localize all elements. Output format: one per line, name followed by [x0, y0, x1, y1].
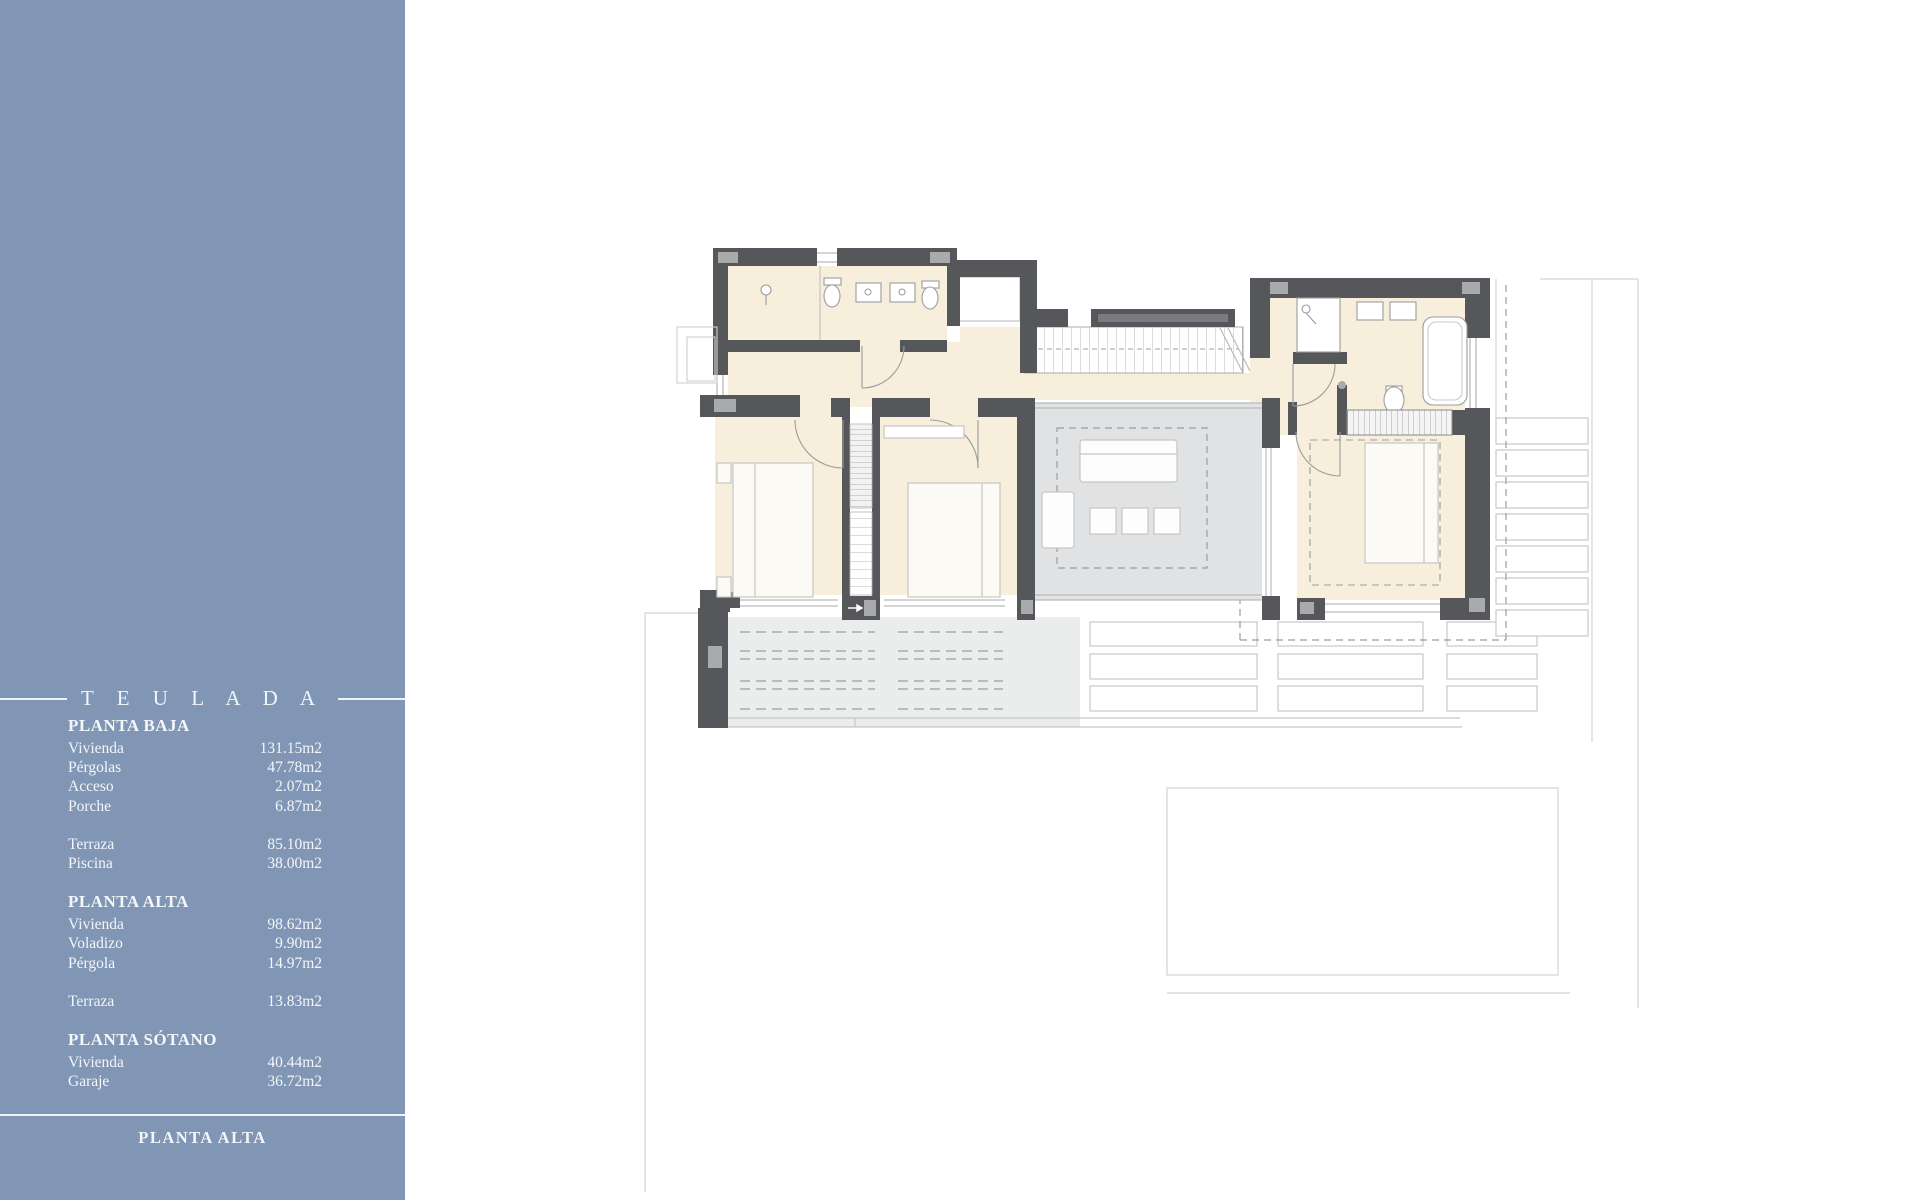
area-value: 14.97m2	[267, 954, 322, 973]
area-value: 38.00m2	[267, 854, 322, 873]
area-value: 36.72m2	[267, 1072, 322, 1091]
area-row: Vivienda131.15m2	[68, 739, 322, 758]
area-label: Acceso	[68, 777, 114, 796]
closet-room	[958, 277, 1020, 321]
area-group: Terraza85.10m2Piscina38.00m2	[68, 835, 322, 873]
area-value: 98.62m2	[267, 915, 322, 934]
area-row: Vivienda98.62m2	[68, 915, 322, 934]
pool-outline	[1167, 788, 1570, 993]
area-group: Terraza13.83m2	[68, 992, 322, 1011]
stairs-main	[1025, 327, 1250, 373]
area-label: Terraza	[68, 992, 114, 1011]
title-rule-left	[0, 698, 67, 700]
title-rule-right	[338, 698, 405, 700]
area-label: Pérgola	[68, 954, 115, 973]
area-label: Voladizo	[68, 934, 123, 953]
area-row: Porche6.87m2	[68, 797, 322, 816]
area-row: Terraza13.83m2	[68, 992, 322, 1011]
footer-divider	[0, 1114, 405, 1116]
area-value: 85.10m2	[267, 835, 322, 854]
floor-label: PLANTA ALTA	[0, 1128, 405, 1148]
area-label: Pérgolas	[68, 758, 121, 777]
sink-2	[1390, 302, 1416, 320]
area-section: PLANTA BAJAVivienda131.15m2Pérgolas47.78…	[68, 716, 322, 873]
info-sidebar: T E U L A D A PLANTA BAJAVivienda131.15m…	[0, 0, 405, 1200]
area-row: Pérgola14.97m2	[68, 954, 322, 973]
area-row: Pérgolas47.78m2	[68, 758, 322, 777]
area-group: Vivienda40.44m2Garaje36.72m2	[68, 1053, 322, 1091]
area-value: 2.07m2	[275, 777, 322, 796]
project-title: T E U L A D A	[67, 686, 338, 711]
area-row: Vivienda40.44m2	[68, 1053, 322, 1072]
area-value: 6.87m2	[275, 797, 322, 816]
area-value: 9.90m2	[275, 934, 322, 953]
sidebar-sections: PLANTA BAJAVivienda131.15m2Pérgolas47.78…	[68, 716, 322, 1110]
area-label: Garaje	[68, 1072, 109, 1091]
toilet	[1384, 387, 1404, 413]
section-heading: PLANTA ALTA	[68, 892, 322, 912]
area-row: Garaje36.72m2	[68, 1072, 322, 1091]
area-row: Acceso2.07m2	[68, 777, 322, 796]
section-heading: PLANTA BAJA	[68, 716, 322, 736]
area-group: Vivienda98.62m2Voladizo9.90m2Pérgola14.9…	[68, 915, 322, 973]
area-section: PLANTA SÓTANOVivienda40.44m2Garaje36.72m…	[68, 1030, 322, 1091]
area-label: Terraza	[68, 835, 114, 854]
project-title-row: T E U L A D A	[0, 686, 405, 711]
living-void	[1035, 403, 1271, 600]
area-label: Piscina	[68, 854, 113, 873]
master-wardrobe	[1347, 410, 1452, 435]
area-group: Vivienda131.15m2Pérgolas47.78m2Acceso2.0…	[68, 739, 322, 816]
area-label: Vivienda	[68, 1053, 124, 1072]
area-value: 13.83m2	[267, 992, 322, 1011]
area-value: 40.44m2	[267, 1053, 322, 1072]
area-label: Vivienda	[68, 915, 124, 934]
sink-1	[1357, 302, 1383, 320]
area-label: Vivienda	[68, 739, 124, 758]
area-section: PLANTA ALTAVivienda98.62m2Voladizo9.90m2…	[68, 892, 322, 1011]
area-row: Terraza85.10m2	[68, 835, 322, 854]
area-row: Voladizo9.90m2	[68, 934, 322, 953]
planter-outline	[677, 327, 717, 383]
service-shaft	[848, 407, 872, 611]
area-label: Porche	[68, 797, 111, 816]
section-heading: PLANTA SÓTANO	[68, 1030, 322, 1050]
area-value: 47.78m2	[267, 758, 322, 777]
pergola-slats-south	[1090, 622, 1537, 711]
area-value: 131.15m2	[260, 739, 322, 758]
area-row: Piscina38.00m2	[68, 854, 322, 873]
pergola-slats-east	[1496, 418, 1588, 636]
